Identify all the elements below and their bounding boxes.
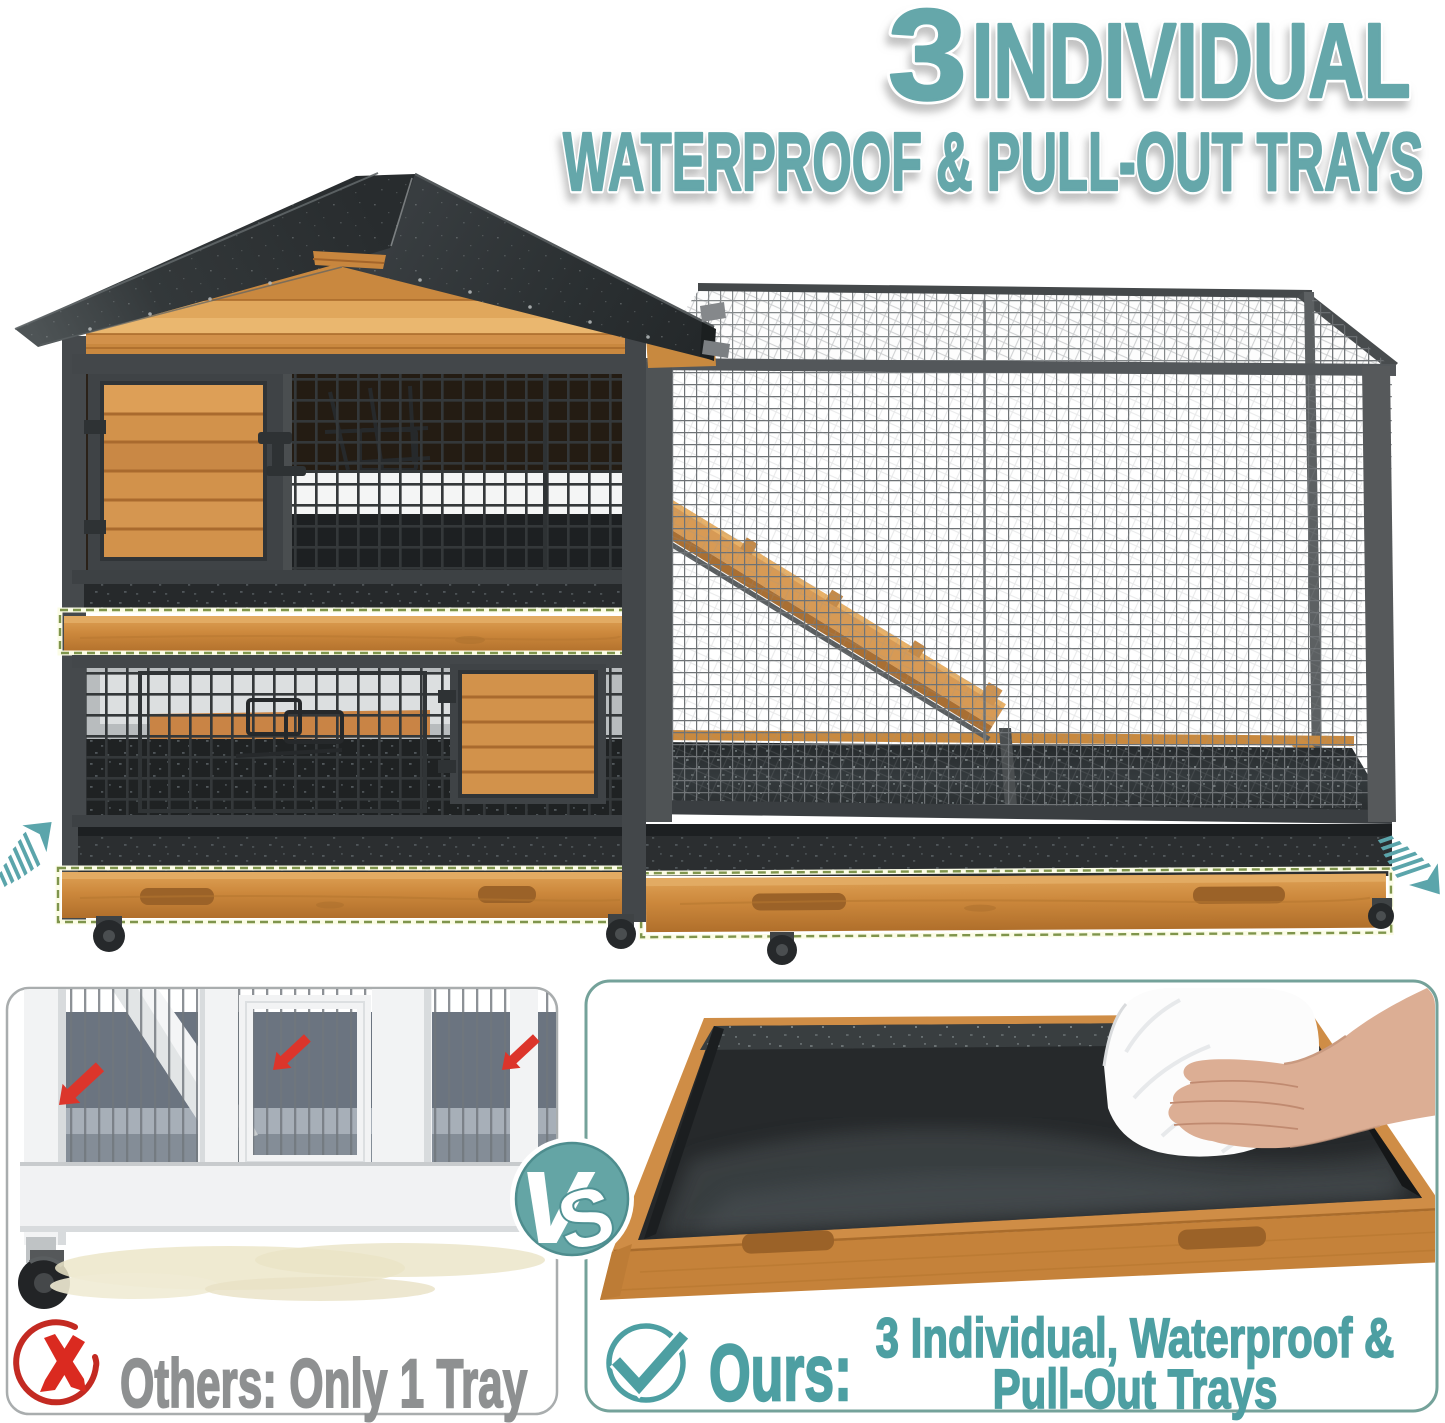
svg-text:Others: Only 1 Tray: Others: Only 1 Tray bbox=[120, 1346, 527, 1422]
svg-text:3: 3 bbox=[888, 0, 967, 127]
svg-text:Pull-Out Trays: Pull-Out Trays bbox=[993, 1358, 1278, 1420]
svg-text:INDIVIDUAL: INDIVIDUAL bbox=[972, 1, 1411, 120]
svg-text:WATERPROOF & PULL-OUT TRAYS: WATERPROOF & PULL-OUT TRAYS bbox=[563, 115, 1424, 208]
svg-text:Ours:: Ours: bbox=[709, 1328, 852, 1417]
